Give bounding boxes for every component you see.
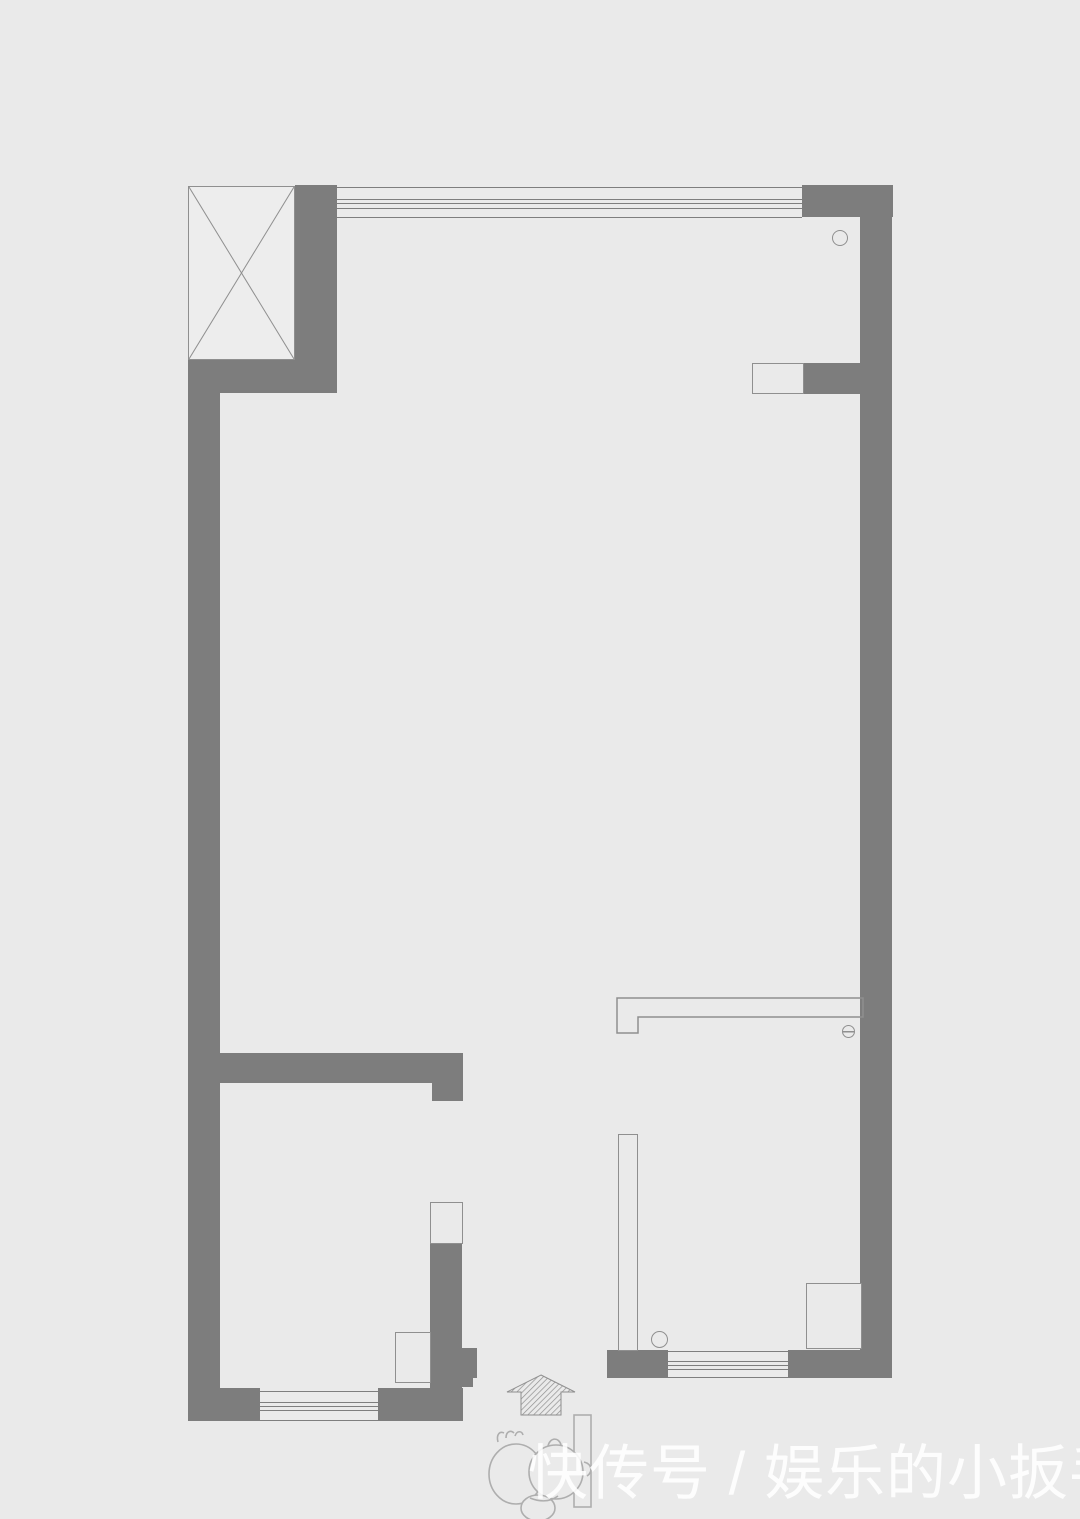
- door-pocket-left: [430, 1202, 463, 1244]
- wall-right: [860, 217, 892, 1378]
- wall-door-jamb-bump: [462, 1348, 477, 1378]
- switch-symbol-icon: [842, 1025, 855, 1038]
- shaft-crossed-box: [188, 186, 295, 360]
- ceiling-point-icon-top: [832, 230, 848, 246]
- fixture-left-lower: [395, 1332, 431, 1383]
- wall-door-jamb-step: [462, 1378, 473, 1387]
- window-bottom-right: [668, 1351, 788, 1378]
- wall-left: [188, 393, 220, 1421]
- wall-midleft-horizontal: [218, 1053, 463, 1083]
- wall-bottomright-a: [607, 1350, 668, 1378]
- beam-outline: [616, 997, 864, 1034]
- wall-bottomleft-b: [378, 1388, 463, 1421]
- floor-plan-canvas: 快传号 / 娱乐的小扳手: [0, 0, 1080, 1519]
- wall-top-right: [802, 185, 893, 217]
- window-top: [337, 187, 802, 218]
- fixture-right-corner: [806, 1283, 862, 1349]
- watermark-text: 快传号 / 娱乐的小扳手: [528, 1444, 1080, 1504]
- window-bottom-left: [260, 1391, 378, 1421]
- shaft-x-icon: [189, 187, 294, 359]
- wall-bottomleft-a: [188, 1388, 260, 1421]
- entrance-arrow-icon: [506, 1374, 577, 1417]
- door-pocket-upper-right: [752, 363, 804, 394]
- wall-below-shaft: [188, 360, 337, 393]
- wall-stub-upper-right: [803, 363, 860, 394]
- ceiling-point-icon-bottom: [651, 1331, 668, 1348]
- wall-bottomright-b: [788, 1350, 892, 1378]
- wall-midleft-stub: [432, 1083, 463, 1101]
- tall-panel-right-room: [618, 1134, 638, 1351]
